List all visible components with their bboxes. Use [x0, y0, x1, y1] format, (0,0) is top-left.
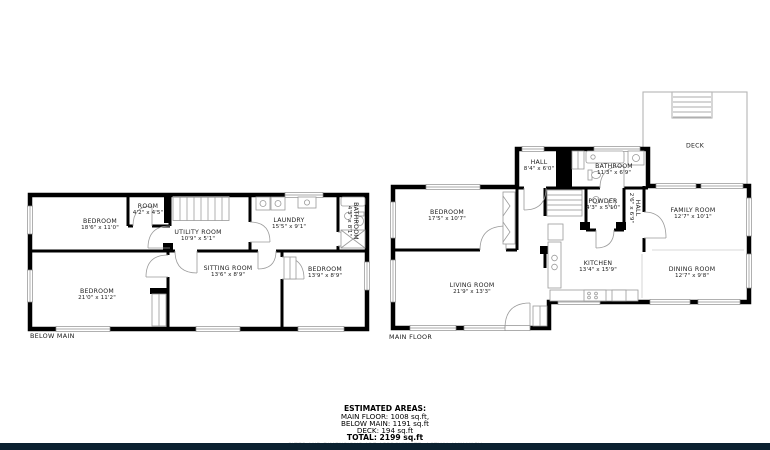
dishwasher-icon	[612, 290, 626, 301]
room-dims: 4'3" x 5'10"	[586, 205, 620, 212]
room-label-room: ROOM 4'2" x 4'5"	[133, 203, 163, 217]
room-name: LAUNDRY	[272, 217, 306, 224]
room-label-bedroom-3: BEDROOM 13'9" x 8'9"	[308, 266, 342, 280]
kitchen-counter	[548, 242, 561, 288]
room-dims: 13'4" x 15'9"	[579, 267, 617, 274]
room-name: UTILITY ROOM	[174, 229, 221, 236]
room-name: BATHROOM	[352, 202, 359, 240]
bathtub-icon-main	[586, 151, 624, 163]
room-dims: 12'7" x 10'1"	[671, 214, 716, 221]
room-label-utility: UTILITY ROOM 10'9" x 5'1"	[174, 229, 221, 243]
plan-label-below-main: BELOW MAIN	[30, 332, 75, 340]
area-total: TOTAL: 2199 sq.ft	[0, 434, 770, 442]
room-name: DECK	[686, 142, 704, 149]
room-label-living: LIVING ROOM 21'9" x 13'3"	[450, 282, 495, 296]
room-label-deck: DECK	[686, 142, 704, 149]
room-name: LIVING ROOM	[450, 282, 495, 289]
room-dims: 4'5" x 8'1"	[345, 202, 352, 240]
room-name: BEDROOM	[308, 266, 342, 273]
stove-icon	[584, 290, 606, 301]
room-name: HALL	[634, 193, 641, 223]
room-dims: 11'3" x 6'9"	[595, 170, 633, 177]
bedroom-closet-bifold	[503, 192, 515, 244]
room-label-hall: HALL 8'4" x 6'0"	[524, 159, 554, 173]
room-label-powder: POWDER 4'3" x 5'10"	[586, 198, 620, 212]
room-label-bedroom-1: BEDROOM 18'6" x 11'0"	[81, 218, 119, 232]
room-label-laundry: LAUNDRY 15'5" x 9'1"	[272, 217, 306, 231]
plan-label-main-floor: MAIN FLOOR	[389, 333, 432, 341]
room-label-bedroom-main: BEDROOM 17'5" x 10'7"	[428, 209, 466, 223]
room-name: BEDROOM	[428, 209, 466, 216]
room-dims: 8'4" x 6'0"	[524, 166, 554, 173]
room-dims: 21'0" x 11'2"	[78, 295, 116, 302]
dryer-icon	[271, 197, 285, 210]
room-label-bathroom-below: BATHROOM 4'5" x 8'1"	[345, 202, 359, 240]
room-dims: 12'7" x 9'8"	[669, 273, 716, 280]
room-name: DINING ROOM	[669, 266, 716, 273]
room-label-dining: DINING ROOM 12'7" x 9'8"	[669, 266, 716, 280]
room-name: FAMILY ROOM	[671, 207, 716, 214]
room-dims: 10'9" x 5'1"	[174, 236, 221, 243]
room-dims: 4'2" x 4'5"	[133, 210, 163, 217]
deck-stairs-icon	[672, 92, 712, 118]
room-name: BATHROOM	[595, 163, 633, 170]
room-label-family: FAMILY ROOM 12'7" x 10'1"	[671, 207, 716, 221]
room-name: HALL	[524, 159, 554, 166]
room-dims: 18'6" x 11'0"	[81, 225, 119, 232]
laundry-tub-icon	[298, 197, 316, 208]
floor-plan-below-main	[27, 192, 369, 331]
room-name: POWDER	[586, 198, 620, 205]
room-name: SITTING ROOM	[204, 265, 253, 272]
closet-bedroom2	[152, 294, 166, 326]
deck-outline	[643, 92, 747, 186]
room-name: BEDROOM	[81, 218, 119, 225]
room-name: BEDROOM	[78, 288, 116, 295]
room-dims: 13'6" x 8'9"	[204, 272, 253, 279]
room-dims: 17'5" x 10'7"	[428, 216, 466, 223]
room-label-bathroom-main: BATHROOM 11'3" x 6'9"	[595, 163, 633, 177]
footer-bar	[0, 443, 770, 450]
room-label-hall-2: HALL 2'6" x 6'9"	[627, 193, 641, 223]
room-label-bedroom-2: BEDROOM 21'0" x 11'2"	[78, 288, 116, 302]
room-label-kitchen: KITCHEN 13'4" x 15'9"	[579, 260, 617, 274]
room-label-sitting: SITTING ROOM 13'6" x 8'9"	[204, 265, 253, 279]
below-main-outer-wall	[30, 195, 367, 329]
floorplan-page: BEDROOM 18'6" x 11'0" ROOM 4'2" x 4'5" U…	[0, 0, 770, 450]
fridge-icon	[548, 224, 563, 240]
entry-closet	[533, 306, 547, 326]
room-dims: 2'6" x 6'9"	[627, 193, 634, 223]
room-dims: 13'9" x 8'9"	[308, 273, 342, 280]
room-dims: 15'5" x 9'1"	[272, 224, 306, 231]
room-name: ROOM	[133, 203, 163, 210]
washer-icon	[256, 197, 270, 210]
closet-bedroom3	[284, 257, 296, 279]
room-name: KITCHEN	[579, 260, 617, 267]
room-dims: 21'9" x 13'3"	[450, 289, 495, 296]
hall-closet	[572, 151, 584, 169]
